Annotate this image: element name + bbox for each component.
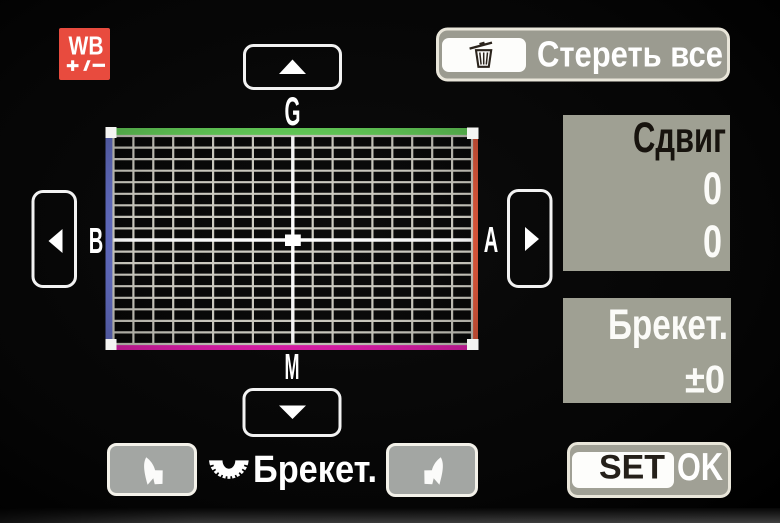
svg-text:M: M [285, 346, 300, 387]
svg-text:WB: WB [69, 31, 104, 61]
svg-text:0: 0 [703, 216, 722, 267]
svg-text:Брекет.: Брекет. [608, 301, 728, 349]
svg-text:Брекет.: Брекет. [253, 449, 377, 491]
svg-text:±0: ±0 [685, 359, 725, 402]
svg-text:B: B [89, 220, 104, 261]
svg-text:Стереть все: Стереть все [537, 34, 723, 75]
svg-text:SET: SET [599, 449, 665, 487]
svg-text:Сдвиг: Сдвиг [633, 114, 726, 162]
svg-text:OK: OK [677, 446, 723, 489]
svg-text:A: A [484, 219, 499, 260]
svg-text:0: 0 [703, 163, 722, 214]
